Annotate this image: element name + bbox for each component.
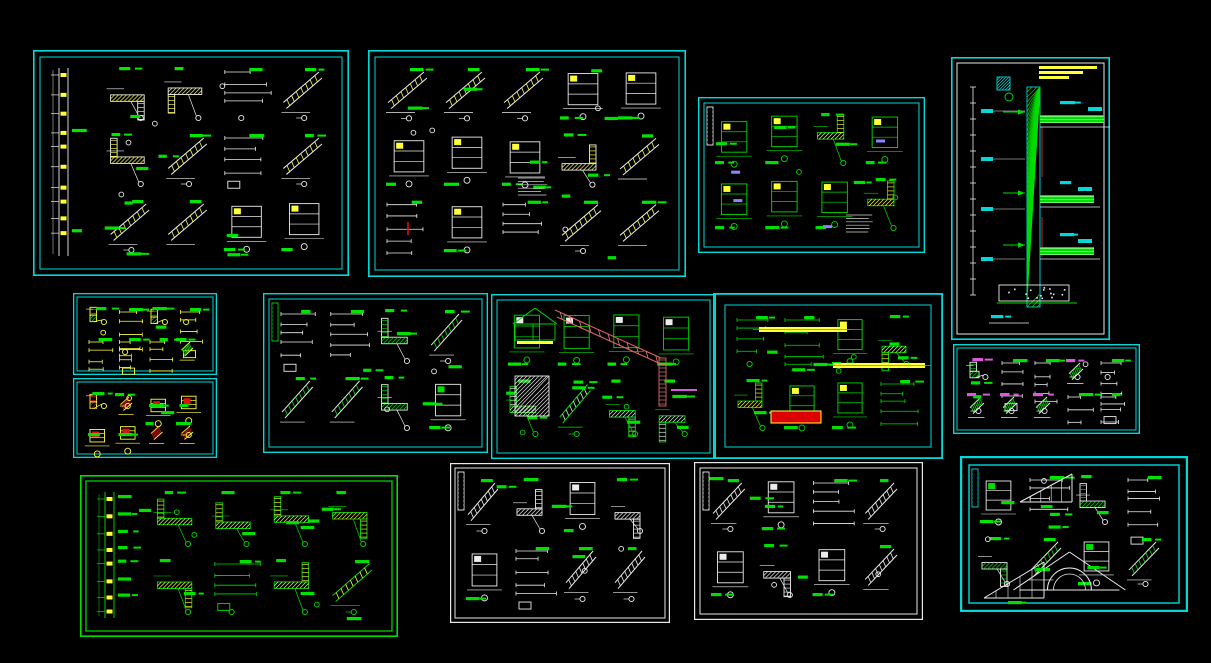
- drawing-sheet-5-small-node-details-sheet-5: [73, 293, 217, 375]
- cad-drawing-canvas: [0, 0, 1211, 663]
- drawing-sheet-4-tall-wall-section-sheet-4: [951, 57, 1110, 340]
- drawing-sheet-11-green-wall-details-sheet-11: [80, 475, 398, 637]
- drawing-sheet-8-roof-slope-details-sheet-8: [491, 294, 716, 459]
- drawing-sheet-7-stair-and-railing-details-sheet-7: [263, 293, 488, 453]
- drawing-sheet-13-white-node-details-sheet-13: [694, 462, 923, 620]
- drawing-sheet-1-wall-section-details-sheet-1: [33, 50, 349, 276]
- drawing-sheet-2-eave-and-parapet-details-sheet-2: [368, 50, 686, 277]
- drawing-sheet-6-small-node-details-sheet-6: [73, 378, 217, 458]
- drawing-sheet-14-gable-pediment-details-sheet-14: [960, 456, 1188, 612]
- drawing-sheet-3-window-jamb-details-sheet-3: [698, 97, 925, 253]
- drawing-sheet-12-white-construction-details-sheet-12: [450, 463, 670, 623]
- drawing-sheet-10-column-details-sheet-10: [953, 344, 1140, 434]
- drawing-sheet-9-beam-node-details-sheet-9: [713, 293, 943, 459]
